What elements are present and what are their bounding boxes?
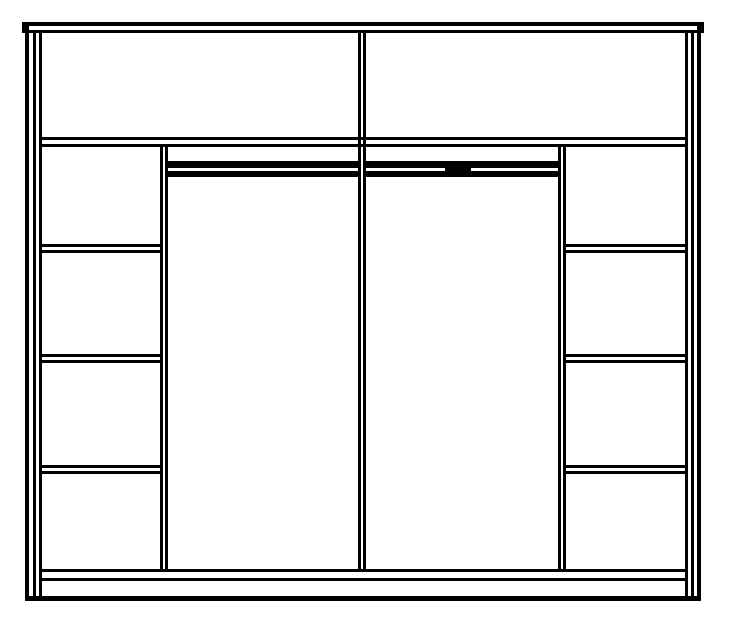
left-shelf-2: [42, 354, 160, 363]
left-shelf-1: [42, 244, 160, 253]
wardrobe-diagram: [0, 0, 740, 622]
base-panel: [42, 569, 685, 581]
left-column-partition: [160, 144, 168, 569]
left-side-panel: [33, 31, 42, 599]
right-shelf-2: [566, 354, 685, 363]
right-shelf-3: [566, 465, 685, 474]
center-partition: [358, 31, 366, 569]
left-shelf-3: [42, 465, 160, 474]
right-side-panel: [685, 31, 694, 599]
hanging-rail-left: [168, 161, 358, 177]
rail-bracket: [445, 162, 471, 175]
right-column-partition: [558, 144, 566, 569]
right-shelf-1: [566, 244, 685, 253]
